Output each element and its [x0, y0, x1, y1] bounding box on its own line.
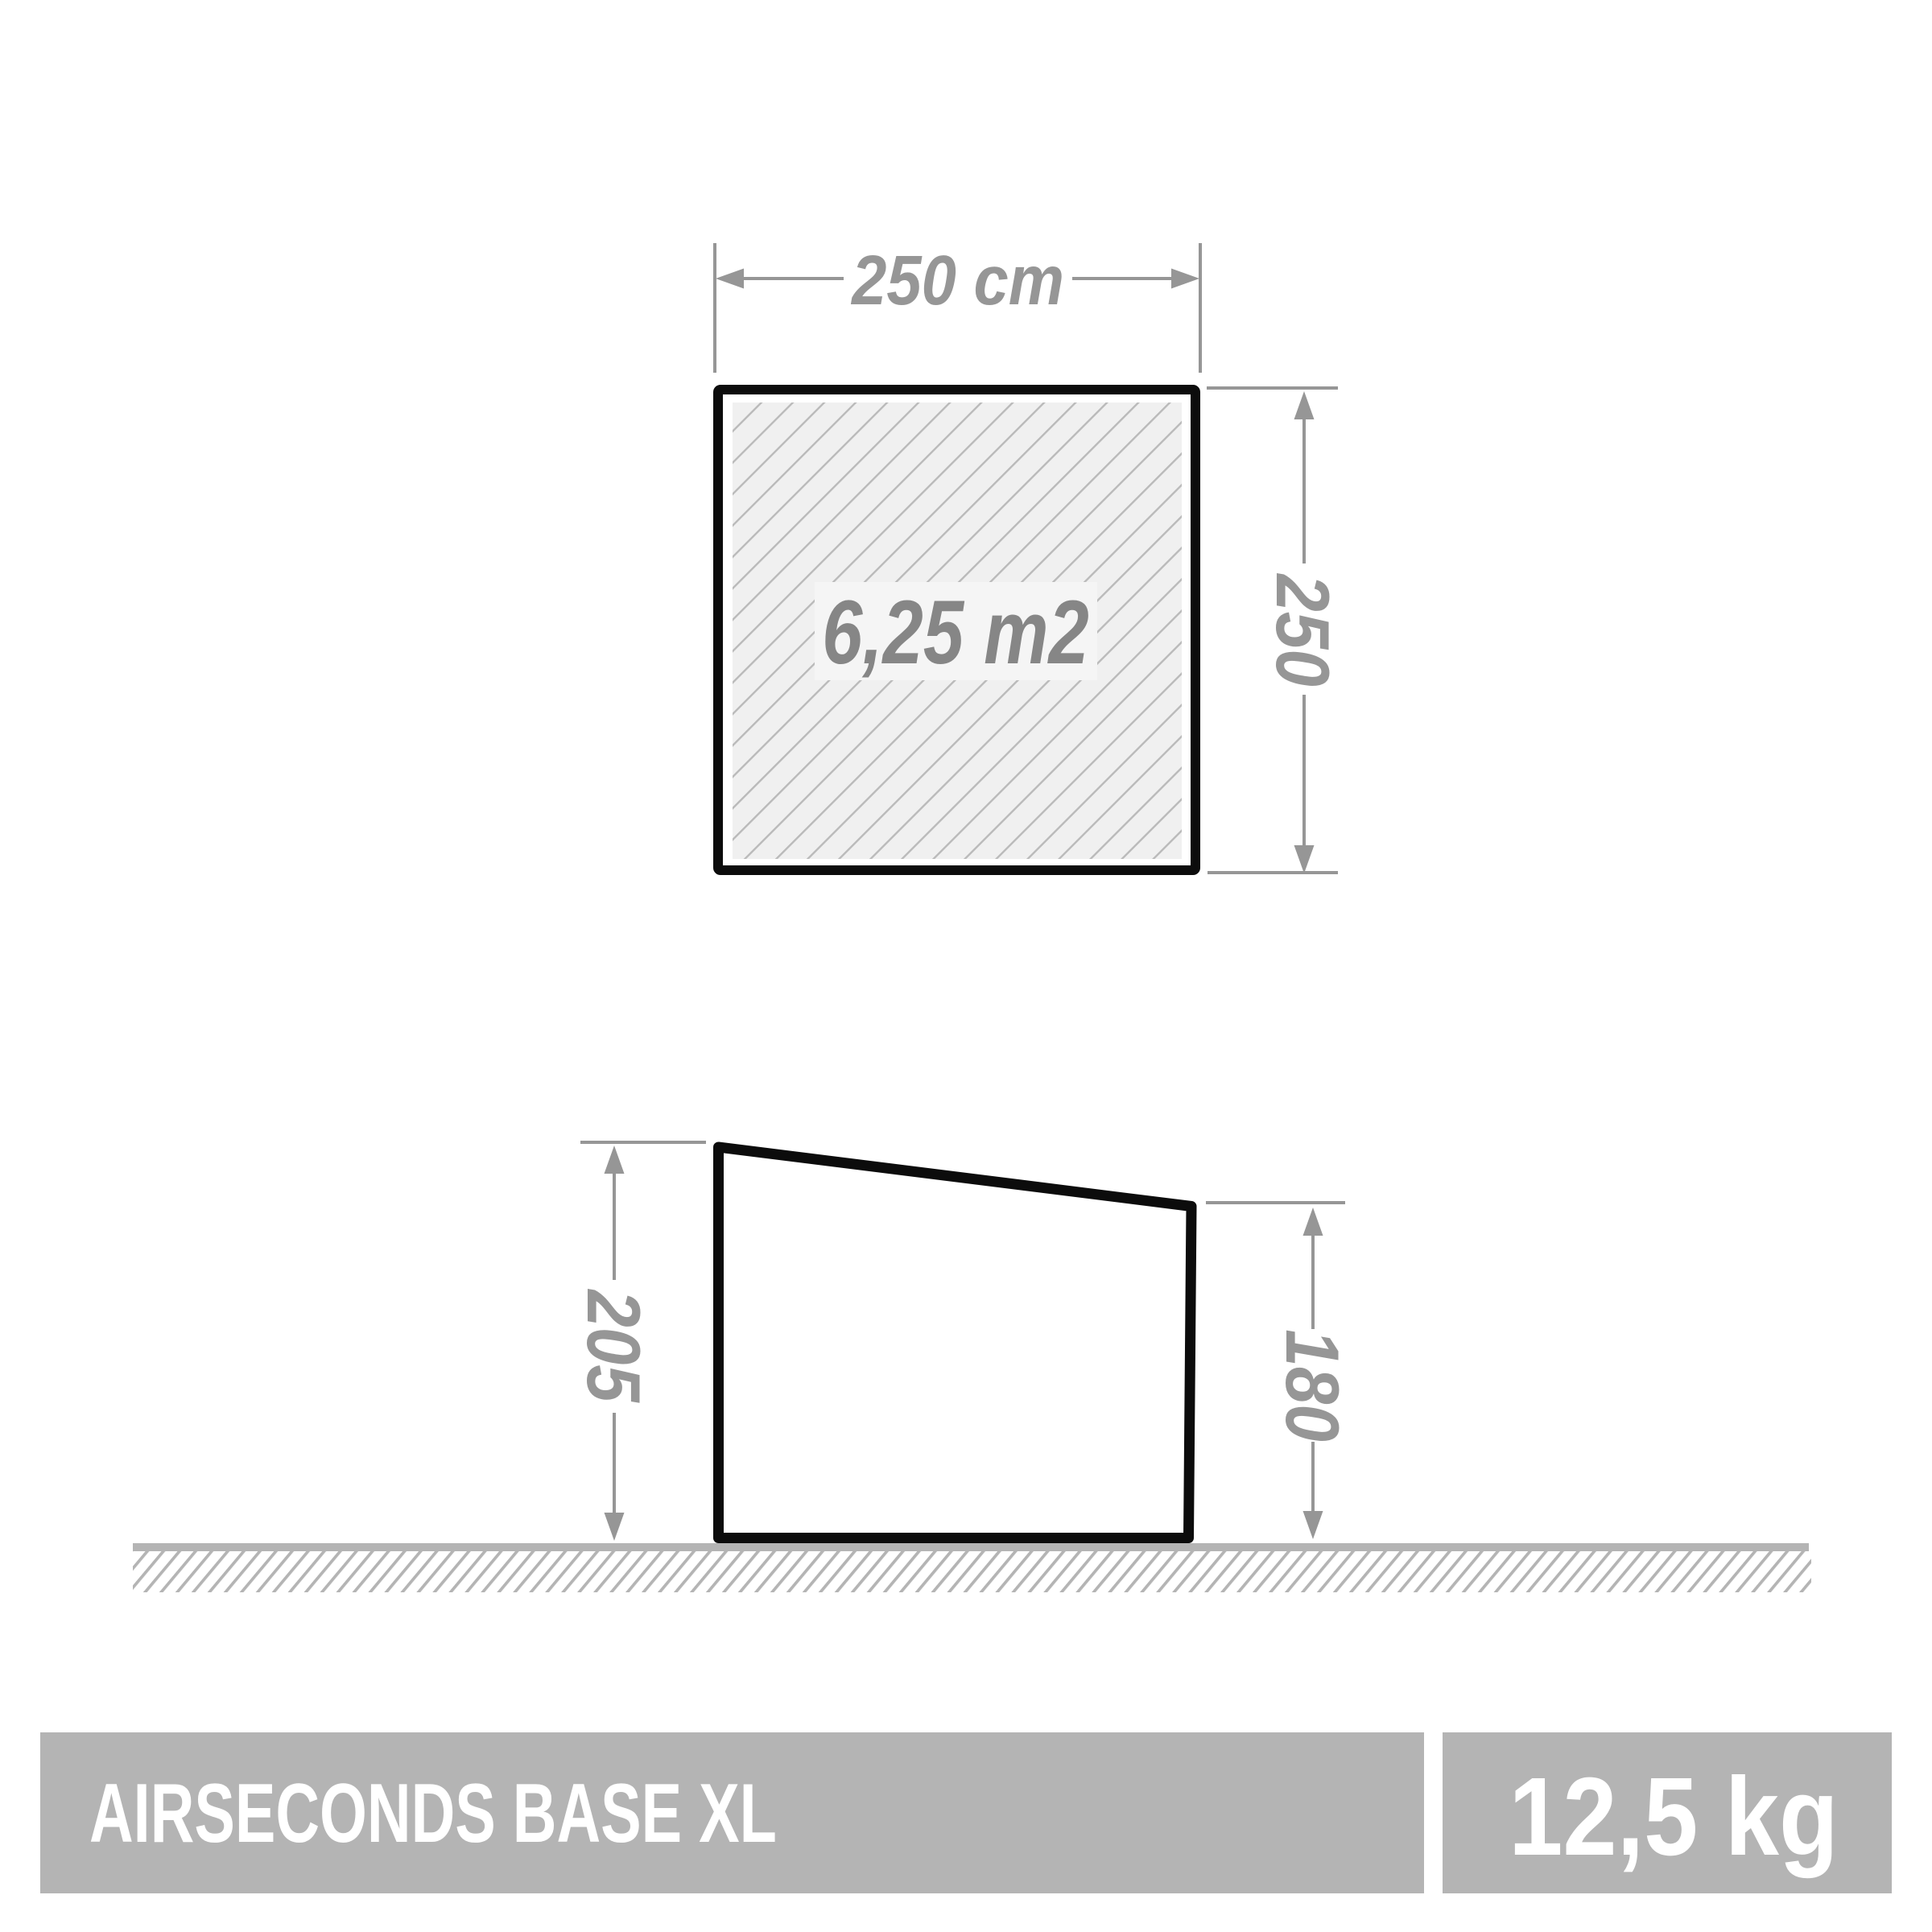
svg-text:6,25 m2: 6,25 m2 — [822, 582, 1089, 683]
svg-text:AIRSECONDS BASE XL: AIRSECONDS BASE XL — [89, 1767, 777, 1860]
svg-text:250 cm: 250 cm — [850, 241, 1064, 320]
svg-text:250: 250 — [1261, 572, 1346, 686]
svg-text:180: 180 — [1270, 1329, 1356, 1442]
svg-text:12,5 kg: 12,5 kg — [1509, 1756, 1838, 1879]
svg-text:205: 205 — [572, 1288, 657, 1403]
